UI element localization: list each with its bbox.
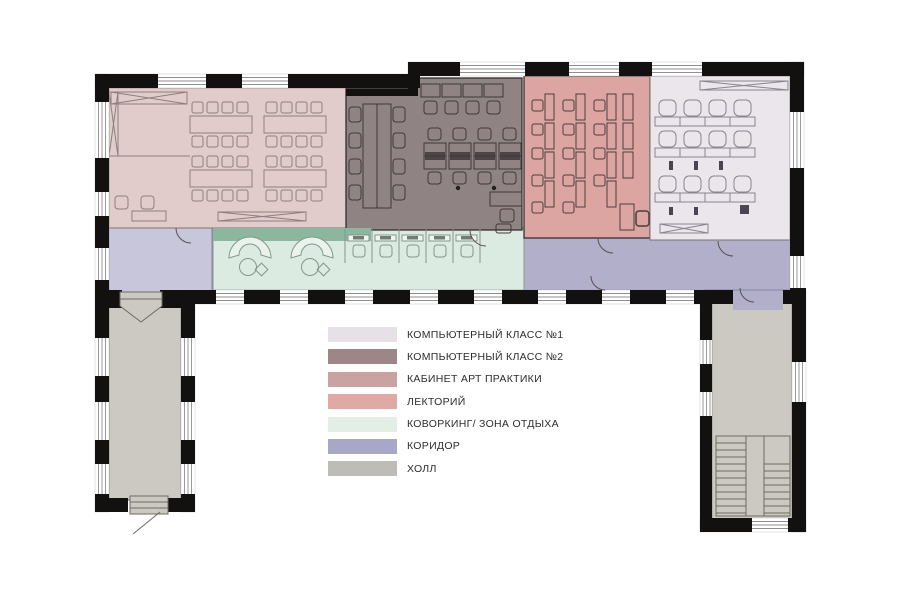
page: КОМПЬЮТЕРНЫЙ КЛАСС №1 КОМПЬЮТЕРНЫЙ КЛАСС… [0, 0, 900, 600]
legend-label: КОМПЬЮТЕРНЫЙ КЛАСС №2 [407, 351, 563, 363]
legend-item: КОМПЬЮТЕРНЫЙ КЛАСС №2 [328, 349, 563, 364]
coworking-green-counter [213, 228, 371, 241]
legend-item: ХОЛЛ [328, 461, 563, 476]
room-hall-right [712, 296, 792, 520]
room-hall-left [109, 292, 181, 500]
room-corridor-left [109, 228, 212, 292]
entry-door-line [133, 512, 160, 534]
room-computer-class-1 [650, 76, 790, 240]
legend-label: КАБИНЕТ АРТ ПРАКТИКИ [407, 373, 542, 385]
floor-plan [0, 0, 900, 600]
legend-item: КОВОРКИНГ/ ЗОНА ОТДЫХА [328, 417, 563, 432]
legend-item: ЛЕКТОРИЙ [328, 394, 563, 409]
legend-swatch [328, 349, 397, 364]
room-art-practice [109, 88, 346, 228]
legend-item: КОРИДОР [328, 439, 563, 454]
legend-item: КАБИНЕТ АРТ ПРАКТИКИ [328, 372, 563, 387]
legend: КОМПЬЮТЕРНЫЙ КЛАСС №1 КОМПЬЮТЕРНЫЙ КЛАСС… [328, 327, 563, 484]
legend-label: КОВОРКИНГ/ ЗОНА ОТДЫХА [407, 418, 559, 430]
legend-label: КОМПЬЮТЕРНЫЙ КЛАСС №1 [407, 329, 563, 341]
legend-swatch [328, 461, 397, 476]
legend-label: КОРИДОР [407, 440, 460, 452]
legend-swatch [328, 417, 397, 432]
legend-swatch [328, 394, 397, 409]
legend-swatch [328, 439, 397, 454]
legend-label: ЛЕКТОРИЙ [407, 396, 466, 408]
legend-item: КОМПЬЮТЕРНЫЙ КЛАСС №1 [328, 327, 563, 342]
room-corridor-right [524, 238, 790, 290]
legend-label: ХОЛЛ [407, 463, 437, 475]
legend-swatch [328, 327, 397, 342]
legend-swatch [328, 372, 397, 387]
